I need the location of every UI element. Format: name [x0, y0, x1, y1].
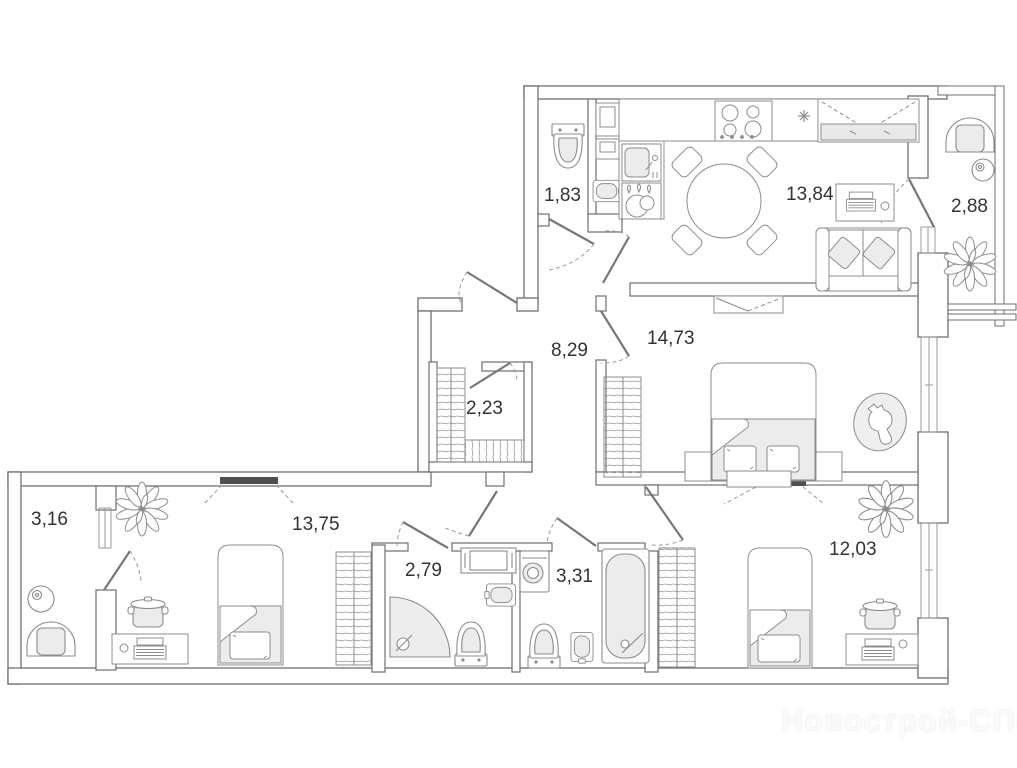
room-area-label-shower-room: 2,79 — [405, 560, 442, 582]
floor-plan-page: 1,83 13,84 2,88 8,29 14,73 2,23 3,16 13,… — [0, 0, 1017, 768]
bedroom-furniture — [604, 296, 914, 487]
room-area-label-bedroom: 14,73 — [647, 328, 695, 350]
bathtub-icon — [602, 549, 649, 663]
shower-room-door-leaf — [469, 491, 497, 536]
pot-icon — [128, 597, 168, 627]
desk-laptop-icon — [836, 184, 894, 221]
sink-icon — [485, 584, 516, 606]
kitchen-sink-icon — [619, 141, 664, 219]
bedroom3-door-leaf — [646, 487, 683, 540]
room-area-label-balcony-right: 2,88 — [951, 196, 988, 218]
sink-icon — [571, 633, 593, 664]
wall-kitchen-stub — [588, 214, 622, 232]
wall-entry-right — [517, 298, 538, 311]
room-area-label-bedroom-3: 12,03 — [829, 539, 877, 561]
wall-bottom — [8, 668, 948, 684]
wardrobe-icon — [818, 99, 919, 142]
bathroom-door-leaf — [557, 518, 596, 546]
wall-left-section-top — [8, 472, 431, 486]
sink-icon — [593, 180, 623, 201]
wall-corridor-stub — [486, 472, 504, 486]
wall-bedroom-left-top — [596, 296, 606, 311]
wc-door-leaf — [549, 219, 594, 244]
balcony-left-window — [99, 508, 111, 548]
balcony-right-door-leaf — [909, 179, 934, 227]
wall-right-pier-3 — [918, 618, 948, 678]
room-area-label-bathroom: 3,31 — [556, 566, 593, 588]
nightstand-icon — [685, 452, 711, 481]
wall-wc-bottom-stub — [538, 214, 549, 226]
sofa-icon — [816, 228, 911, 291]
wall-closet-bottom — [429, 462, 532, 472]
wall-right-pier-1 — [918, 253, 948, 337]
floor-plan-drawing — [0, 0, 1017, 768]
balcony-left-door-leaf — [104, 551, 130, 590]
single-bed-icon — [748, 548, 812, 668]
developer-watermark: Новострой-СПб — [781, 703, 1017, 739]
fridge-icon — [596, 103, 619, 159]
nightstand-icon — [816, 452, 842, 481]
kitchen-door-leaf — [603, 237, 629, 283]
toilet-icon — [552, 124, 584, 168]
balcony-right-door-window — [921, 227, 935, 253]
vanity-icon — [461, 548, 516, 573]
single-bed-icon — [218, 545, 283, 665]
double-bed-icon — [711, 363, 816, 487]
wall-entry-left — [418, 298, 462, 311]
desk-laptop-icon — [112, 634, 188, 664]
room2-furniture — [112, 482, 371, 665]
room-area-label-bedroom-2: 13,75 — [292, 514, 340, 536]
room-area-label-balcony-left: 3,16 — [31, 509, 68, 531]
desk-laptop-icon — [846, 634, 918, 665]
entry-door-leaf — [467, 272, 517, 303]
stove-icon — [715, 101, 772, 141]
dining-table-icon — [670, 145, 779, 257]
corner-shower-icon — [390, 597, 450, 657]
armchair-icon — [946, 118, 994, 152]
wall-closet-left — [429, 362, 437, 472]
wall-balconyL-top — [96, 486, 116, 510]
wall-closet-right — [524, 362, 532, 472]
room-area-label-closet: 2,23 — [466, 398, 503, 420]
side-table-icon — [972, 159, 994, 181]
bedroom-door-leaf — [601, 311, 629, 356]
room-area-label-hall: 8,29 — [551, 340, 588, 362]
wall-room2-right — [372, 545, 385, 672]
wall-left — [8, 472, 21, 684]
plant-icon — [115, 482, 169, 536]
room2-door-leaf — [403, 522, 448, 548]
closet-rack — [465, 440, 524, 462]
plant-icon — [858, 481, 915, 538]
armchair-icon — [27, 622, 75, 656]
dog-on-rug-icon — [846, 386, 913, 457]
headboard — [727, 471, 791, 487]
toilet-icon — [455, 622, 487, 666]
tv-stand-icon — [714, 296, 783, 313]
room-area-label-kitchen-living: 13,84 — [786, 184, 834, 206]
wall-core-right — [524, 86, 538, 302]
wall-right-pier-2 — [918, 432, 948, 523]
balcony-left-furniture — [27, 586, 75, 656]
room-area-label-wc: 1,83 — [544, 185, 581, 207]
toilet-icon — [528, 624, 560, 668]
washing-machine-icon — [520, 551, 549, 592]
wall-top — [524, 86, 947, 99]
pot-icon — [860, 599, 900, 629]
bedroom3-window — [921, 523, 937, 618]
plant-icon — [943, 237, 997, 291]
bedroom-window — [921, 337, 937, 432]
room3-furniture — [659, 481, 918, 668]
side-table-icon — [28, 586, 54, 612]
